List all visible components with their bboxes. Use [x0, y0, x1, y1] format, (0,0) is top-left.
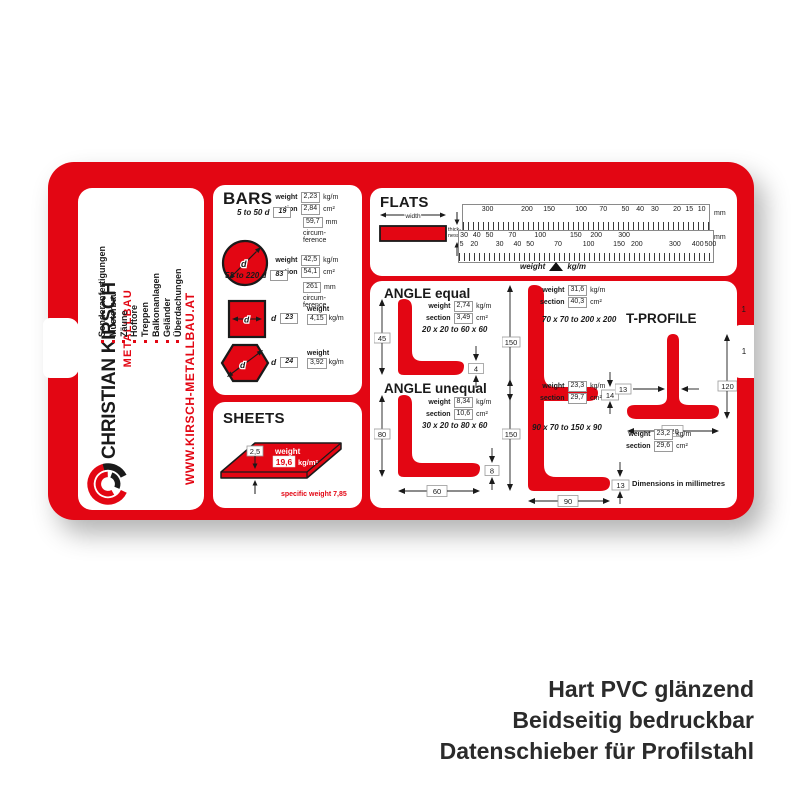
service-item: Überdachungen: [173, 246, 184, 343]
scale-label: 150: [570, 232, 582, 240]
sheet-thickness-value: 2,5: [250, 447, 260, 456]
hexagon-bar-diagram: d: [219, 341, 271, 385]
scale-label: 20: [470, 241, 478, 249]
bars-title: BARS: [223, 189, 272, 209]
scale-label: 40: [514, 241, 522, 249]
round-large-range: 52 to 220 d83: [225, 270, 288, 281]
bullet-icon: [133, 340, 136, 343]
caption-line: Datenschieber für Profilstahl: [440, 736, 754, 767]
slider-index-mark: 1: [742, 305, 746, 314]
scale-label: 200: [631, 241, 643, 249]
scale-label: 30: [651, 206, 659, 214]
angle-unequal-large-range: 90 x 70 to 150 x 90: [532, 423, 602, 432]
scale-label: 300: [669, 241, 681, 249]
dim-thickness: 13: [616, 481, 624, 490]
angle-equal-small-range: 20 x 20 to 60 x 60: [422, 325, 487, 334]
service-item: Musterbau: [108, 246, 119, 343]
dim-height: 150: [505, 338, 518, 347]
slider-tab-mark: 1: [742, 347, 746, 356]
scale-label: 150: [613, 241, 625, 249]
scale-label: 30: [496, 241, 504, 249]
hexagon-weight: weight 3,92 kg/m: [307, 350, 344, 369]
slide-chart-card: 1 1 CHRISTIAN KIRSCH METALLBAU Sonderanf…: [48, 162, 754, 520]
flats-bottom-scale: 52030405070100150200300400500: [459, 241, 713, 249]
scale-label: 40: [636, 206, 644, 214]
bullet-icon: [112, 340, 115, 343]
scale-label: 70: [599, 206, 607, 214]
round-bar-diagram: d: [219, 237, 271, 289]
scale-label: 300: [482, 206, 494, 214]
scale-label: 50: [486, 232, 494, 240]
scale-label: 50: [526, 241, 534, 249]
flats-top-scale: 30020015010070504030201510: [463, 206, 709, 214]
dim-height: 120: [721, 382, 734, 391]
square-bar-diagram: d: [227, 299, 267, 339]
branding-rotated-content: CHRISTIAN KIRSCH METALLBAU Sonderanferti…: [79, 189, 203, 509]
scale-label: 100: [534, 232, 546, 240]
bullet-icon: [155, 340, 158, 343]
product-caption: Hart PVC glänzend Beidseitig bedruckbar …: [440, 674, 754, 767]
square-d-value: d23: [271, 313, 298, 324]
t-profile-title: T-PROFILE: [626, 311, 697, 326]
angles-panel: ANGLE equal 45 4 weight2,74kg/m section3…: [370, 281, 737, 508]
website-url: WWW.KIRSCH-METALLBAU.AT: [183, 292, 197, 485]
caption-line: Hart PVC glänzend: [440, 674, 754, 705]
angle-unequal-small-values: weight8,34kg/m section10,6cm²: [426, 397, 491, 420]
mm-unit-bottom: mm: [714, 234, 726, 241]
angle-equal-large-range: 70 x 70 to 200 x 200: [542, 315, 616, 324]
scale-label: 100: [583, 241, 595, 249]
dim-thickness: 8: [490, 467, 494, 476]
angle-equal-small-values: weight2,74kg/m section3,49cm²: [426, 301, 491, 324]
branding-panel: CHRISTIAN KIRSCH METALLBAU Sonderanferti…: [78, 188, 204, 510]
scale-label: 70: [554, 241, 562, 249]
hexagon-d-value: d24: [271, 357, 298, 368]
mm-unit-top: mm: [714, 210, 726, 217]
service-item: Treppen: [140, 246, 151, 343]
scale-label: 200: [521, 206, 533, 214]
sheet-weight-label: weight: [274, 447, 301, 456]
slider-thumb-notch: [43, 318, 79, 378]
ruler-ticks: [459, 253, 713, 261]
scale-label: 10: [698, 206, 706, 214]
service-item: Balkonanlagen: [151, 246, 162, 343]
width-label: width: [404, 213, 421, 220]
round-small-range: 5 to 50 d19: [237, 207, 291, 218]
ruler-ticks: [463, 222, 709, 230]
kirsch-logo-icon: [85, 461, 131, 507]
slider-tab: 1: [734, 325, 754, 378]
t-profile-values: weight23,2kg/m section29,6cm²: [626, 429, 691, 452]
pointer-triangle-icon: [549, 262, 563, 271]
bullet-icon: [101, 340, 104, 343]
sheets-title: SHEETS: [223, 410, 285, 427]
dim-width: 90: [564, 497, 572, 506]
scale-label: 150: [543, 206, 555, 214]
scale-label: 20: [673, 206, 681, 214]
bars-panel: BARS weight2,23kg/m section2,84cm² 5 to …: [213, 185, 362, 395]
scale-label: 100: [575, 206, 587, 214]
service-item: Sonderanfertigungen: [97, 246, 108, 343]
scale-label: 300: [618, 232, 630, 240]
diameter-label: d: [240, 360, 246, 370]
dim-height: 150: [505, 430, 518, 439]
flats-panel: FLATS width thick- ness 3002001501007050…: [370, 188, 737, 276]
bullet-icon: [144, 340, 147, 343]
sheet-weight-value: 19,6: [276, 457, 293, 467]
dim-width: 60: [433, 487, 441, 496]
weight-pointer: weight kg/m: [520, 262, 586, 271]
dim-height: 45: [378, 334, 386, 343]
scale-label: 200: [590, 232, 602, 240]
sheet-weight-unit: kg/m²: [298, 458, 319, 467]
diameter-label: d: [241, 259, 247, 269]
angle-equal-large-values: weight31,6kg/m section40,3cm²: [540, 285, 605, 308]
caption-line: Beidseitig bedruckbar: [440, 705, 754, 736]
sheets-panel: SHEETS 2,5 weight 19,6 kg/m² specific we…: [213, 402, 362, 508]
flats-mid-scale: 30405070100150200300: [459, 232, 713, 240]
bullet-icon: [122, 340, 125, 343]
dim-height: 80: [378, 430, 386, 439]
scale-label: 70: [508, 232, 516, 240]
bullet-icon: [176, 340, 179, 343]
round-small-circumference: 59,7mm circum- ference: [303, 217, 337, 245]
scale-label: 30: [460, 232, 468, 240]
service-item: Zäune: [119, 246, 130, 343]
flat-bar-diagram: width thick- ness: [378, 210, 464, 262]
angle-unequal-small-range: 30 x 20 to 80 x 60: [422, 421, 487, 430]
scale-label: 400: [692, 241, 704, 249]
specific-weight-note: specific weight 7,85: [281, 491, 347, 498]
square-weight: weight 4,15 kg/m: [307, 306, 344, 325]
scale-label: 15: [685, 206, 693, 214]
scale-label: 40: [473, 232, 481, 240]
dim-stem: 13: [619, 385, 627, 394]
scale-label: 5: [460, 241, 464, 249]
dim-thickness: 4: [474, 365, 478, 374]
service-item: Geländer: [162, 246, 173, 343]
diameter-label: d: [244, 315, 250, 325]
flats-title: FLATS: [380, 194, 429, 211]
sheet-diagram: 2,5 weight 19,6 kg/m² specific weight 7,…: [219, 438, 347, 500]
dimensions-note: Dimensions in millimetres: [632, 479, 725, 488]
scale-label: 50: [621, 206, 629, 214]
bullet-icon: [166, 340, 169, 343]
service-item: Hoftore: [129, 246, 140, 343]
t-profile-diagram: 13 120 120: [615, 329, 737, 441]
ruler-top-strip[interactable]: 30020015010070504030201510: [462, 204, 710, 232]
angle-unequal-large-values: weight23,3kg/m section29,7cm²: [540, 381, 605, 404]
ruler-bottom-strip[interactable]: 30405070100150200300 5203040507010015020…: [458, 230, 714, 263]
scale-label: 500: [705, 241, 717, 249]
services-list: Sonderanfertigungen Musterbau Zäune Hoft…: [97, 246, 183, 343]
